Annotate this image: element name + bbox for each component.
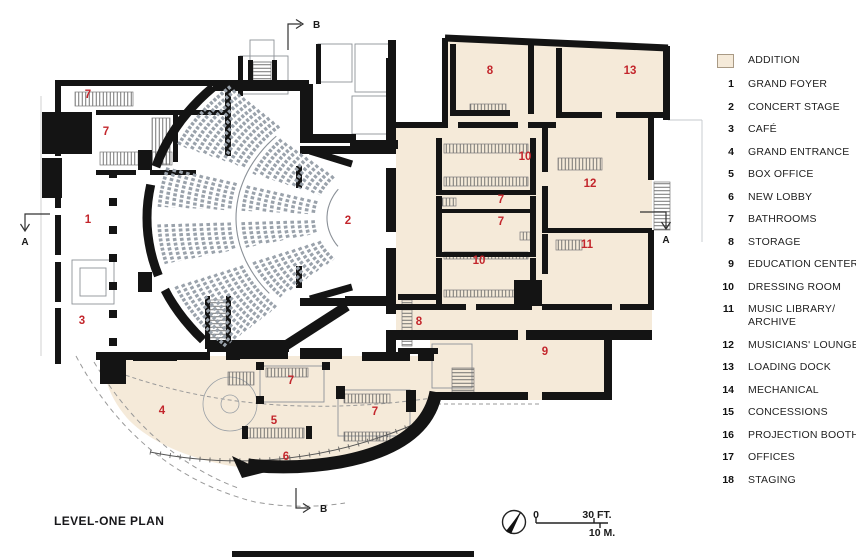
section-marker-b-top: B: [288, 20, 320, 51]
legend-item-number: 1: [710, 78, 734, 91]
legend-item-number: 12: [710, 339, 734, 352]
svg-text:10 M.: 10 M.: [589, 527, 615, 539]
legend-item-label: STAGING: [748, 474, 856, 487]
legend-item: 11MUSIC LIBRARY/ ARCHIVE: [710, 303, 856, 329]
legend-item-label: BOX OFFICE: [748, 168, 856, 181]
legend-item-number: 4: [710, 146, 734, 159]
legend: ADDITION 1GRAND FOYER2CONCERT STAGE3CAFÉ…: [710, 54, 856, 496]
legend-item-label: STORAGE: [748, 236, 856, 249]
legend-item: 4GRAND ENTRANCE: [710, 146, 856, 159]
legend-item: 9EDUCATION CENTER: [710, 258, 856, 271]
legend-item: 18STAGING: [710, 474, 856, 487]
legend-items: 1GRAND FOYER2CONCERT STAGE3CAFÉ4GRAND EN…: [710, 78, 856, 487]
legend-item-label: MUSIC LIBRARY/ ARCHIVE: [748, 303, 856, 329]
room-number: 10: [473, 255, 486, 267]
room-number: 9: [542, 346, 548, 358]
legend-item-number: 18: [710, 474, 734, 487]
legend-item: 6NEW LOBBY: [710, 191, 856, 204]
svg-text:B: B: [320, 504, 327, 515]
room-number: 7: [498, 216, 504, 228]
legend-item-label: NEW LOBBY: [748, 191, 856, 204]
legend-item: 14MECHANICAL: [710, 384, 856, 397]
section-marker-a-left: A: [21, 214, 51, 248]
room-number: 7: [288, 375, 294, 387]
legend-item-number: 11: [710, 303, 734, 316]
legend-addition-label: ADDITION: [748, 54, 856, 67]
legend-item-number: 7: [710, 213, 734, 226]
addition-areas: [103, 38, 668, 470]
legend-item-number: 8: [710, 236, 734, 249]
section-marker-b-bottom: B: [296, 488, 327, 515]
legend-item: 2CONCERT STAGE: [710, 101, 856, 114]
room-number: 10: [519, 151, 532, 163]
legend-item-number: 6: [710, 191, 734, 204]
legend-item-label: DRESSING ROOM: [748, 281, 856, 294]
legend-item-label: LOADING DOCK: [748, 361, 856, 374]
legend-item-label: CONCERT STAGE: [748, 101, 856, 114]
legend-item: 5BOX OFFICE: [710, 168, 856, 181]
legend-item-label: GRAND FOYER: [748, 78, 856, 91]
room-number: 2: [345, 215, 351, 227]
svg-text:0: 0: [533, 509, 539, 521]
legend-item-number: 14: [710, 384, 734, 397]
legend-item: 12MUSICIANS' LOUNGE: [710, 339, 856, 352]
room-number: 4: [159, 405, 166, 417]
legend-item: 3CAFÉ: [710, 123, 856, 136]
legend-item-label: PROJECTION BOOTH: [748, 429, 856, 442]
legend-item: 8STORAGE: [710, 236, 856, 249]
legend-item: 16PROJECTION BOOTH: [710, 429, 856, 442]
addition-swatch: [717, 54, 734, 68]
legend-item-number: 17: [710, 451, 734, 464]
legend-item: 17OFFICES: [710, 451, 856, 464]
legend-item: 10DRESSING ROOM: [710, 281, 856, 294]
legend-addition-row: ADDITION: [710, 54, 856, 68]
plan-title: LEVEL-ONE PLAN: [54, 514, 164, 528]
legend-item-number: 3: [710, 123, 734, 136]
legend-item-number: 13: [710, 361, 734, 374]
scale-bar: 0 30 FT. 10 M.: [533, 509, 615, 539]
legend-item-number: 10: [710, 281, 734, 294]
legend-item-label: OFFICES: [748, 451, 856, 464]
room-number: 8: [487, 65, 494, 77]
room-number: 5: [271, 415, 278, 427]
svg-text:A: A: [662, 235, 669, 246]
floor-plan-page: 7713475762813101277111089 B B A A 0 30 F…: [0, 0, 856, 557]
floor-plan: 7713475762813101277111089 B B A A 0 30 F…: [0, 0, 710, 557]
room-number: 7: [85, 89, 91, 101]
north-arrow-icon: [503, 511, 526, 535]
room-number: 12: [584, 178, 597, 190]
legend-item-label: MUSICIANS' LOUNGE: [748, 339, 856, 352]
room-number: 7: [498, 194, 504, 206]
legend-item-label: EDUCATION CENTER: [748, 258, 856, 271]
legend-item: 15CONCESSIONS: [710, 406, 856, 419]
room-number: 8: [416, 316, 423, 328]
room-number: 1: [85, 214, 92, 226]
room-number: 3: [79, 315, 85, 327]
svg-text:A: A: [21, 237, 28, 248]
legend-item: 13LOADING DOCK: [710, 361, 856, 374]
legend-item-number: 15: [710, 406, 734, 419]
legend-item: 7BATHROOMS: [710, 213, 856, 226]
legend-item-number: 9: [710, 258, 734, 271]
room-number: 7: [103, 126, 109, 138]
room-number: 7: [372, 406, 378, 418]
legend-item-label: GRAND ENTRANCE: [748, 146, 856, 159]
legend-item-number: 2: [710, 101, 734, 114]
legend-item-label: CAFÉ: [748, 123, 856, 136]
legend-item-number: 5: [710, 168, 734, 181]
legend-item: 1GRAND FOYER: [710, 78, 856, 91]
svg-text:30 FT.: 30 FT.: [582, 509, 611, 521]
legend-item-label: MECHANICAL: [748, 384, 856, 397]
legend-item-label: CONCESSIONS: [748, 406, 856, 419]
room-number: 11: [581, 239, 594, 251]
legend-item-label: BATHROOMS: [748, 213, 856, 226]
svg-text:B: B: [313, 20, 320, 31]
legend-item-number: 16: [710, 429, 734, 442]
room-number: 13: [624, 65, 637, 77]
room-number: 6: [283, 451, 289, 463]
